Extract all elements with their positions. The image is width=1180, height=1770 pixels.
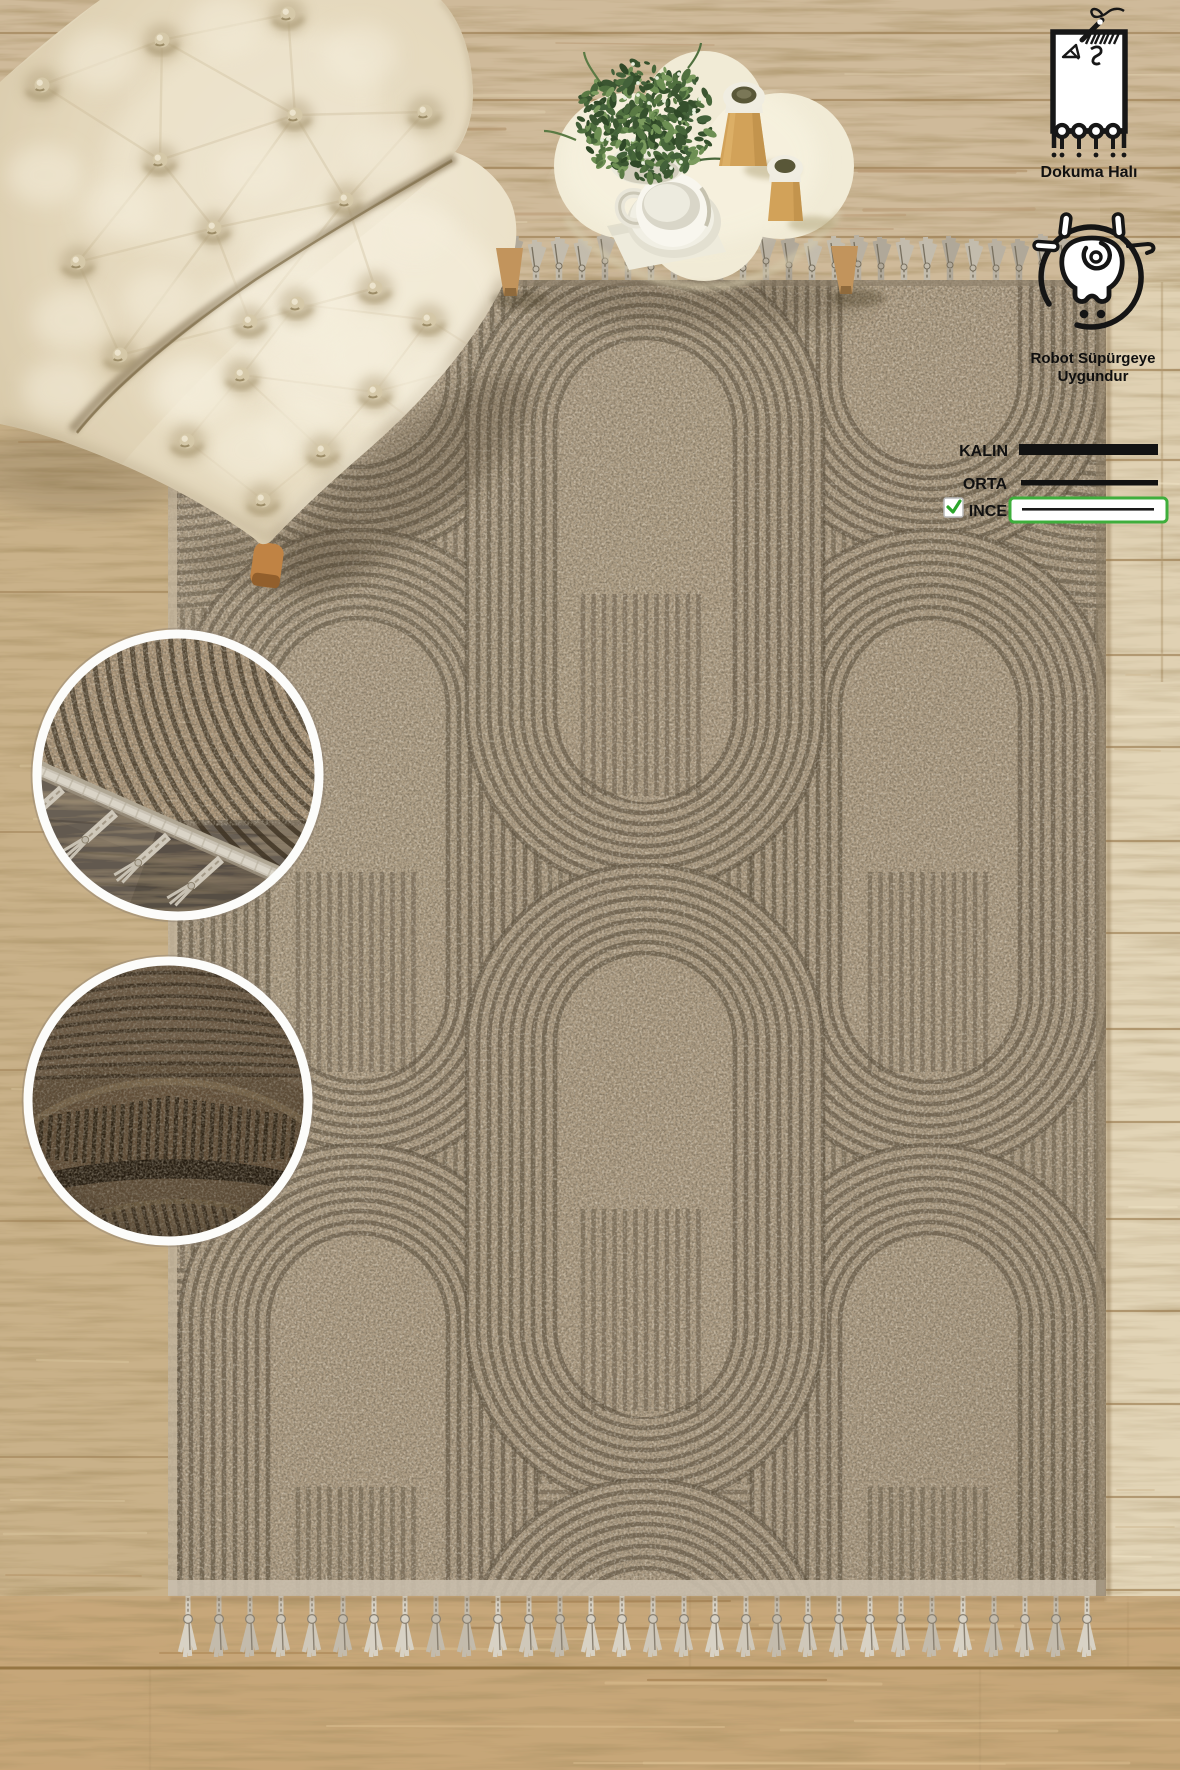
svg-text:ORTA: ORTA <box>963 476 1008 493</box>
svg-text:INCE: INCE <box>969 503 1008 520</box>
svg-text:KALIN: KALIN <box>959 443 1008 460</box>
svg-text:Robot Süpürgeye: Robot Süpürgeye <box>1030 350 1155 367</box>
svg-text:Dokuma Halı: Dokuma Halı <box>1041 164 1138 181</box>
svg-text:Uygundur: Uygundur <box>1058 368 1129 385</box>
